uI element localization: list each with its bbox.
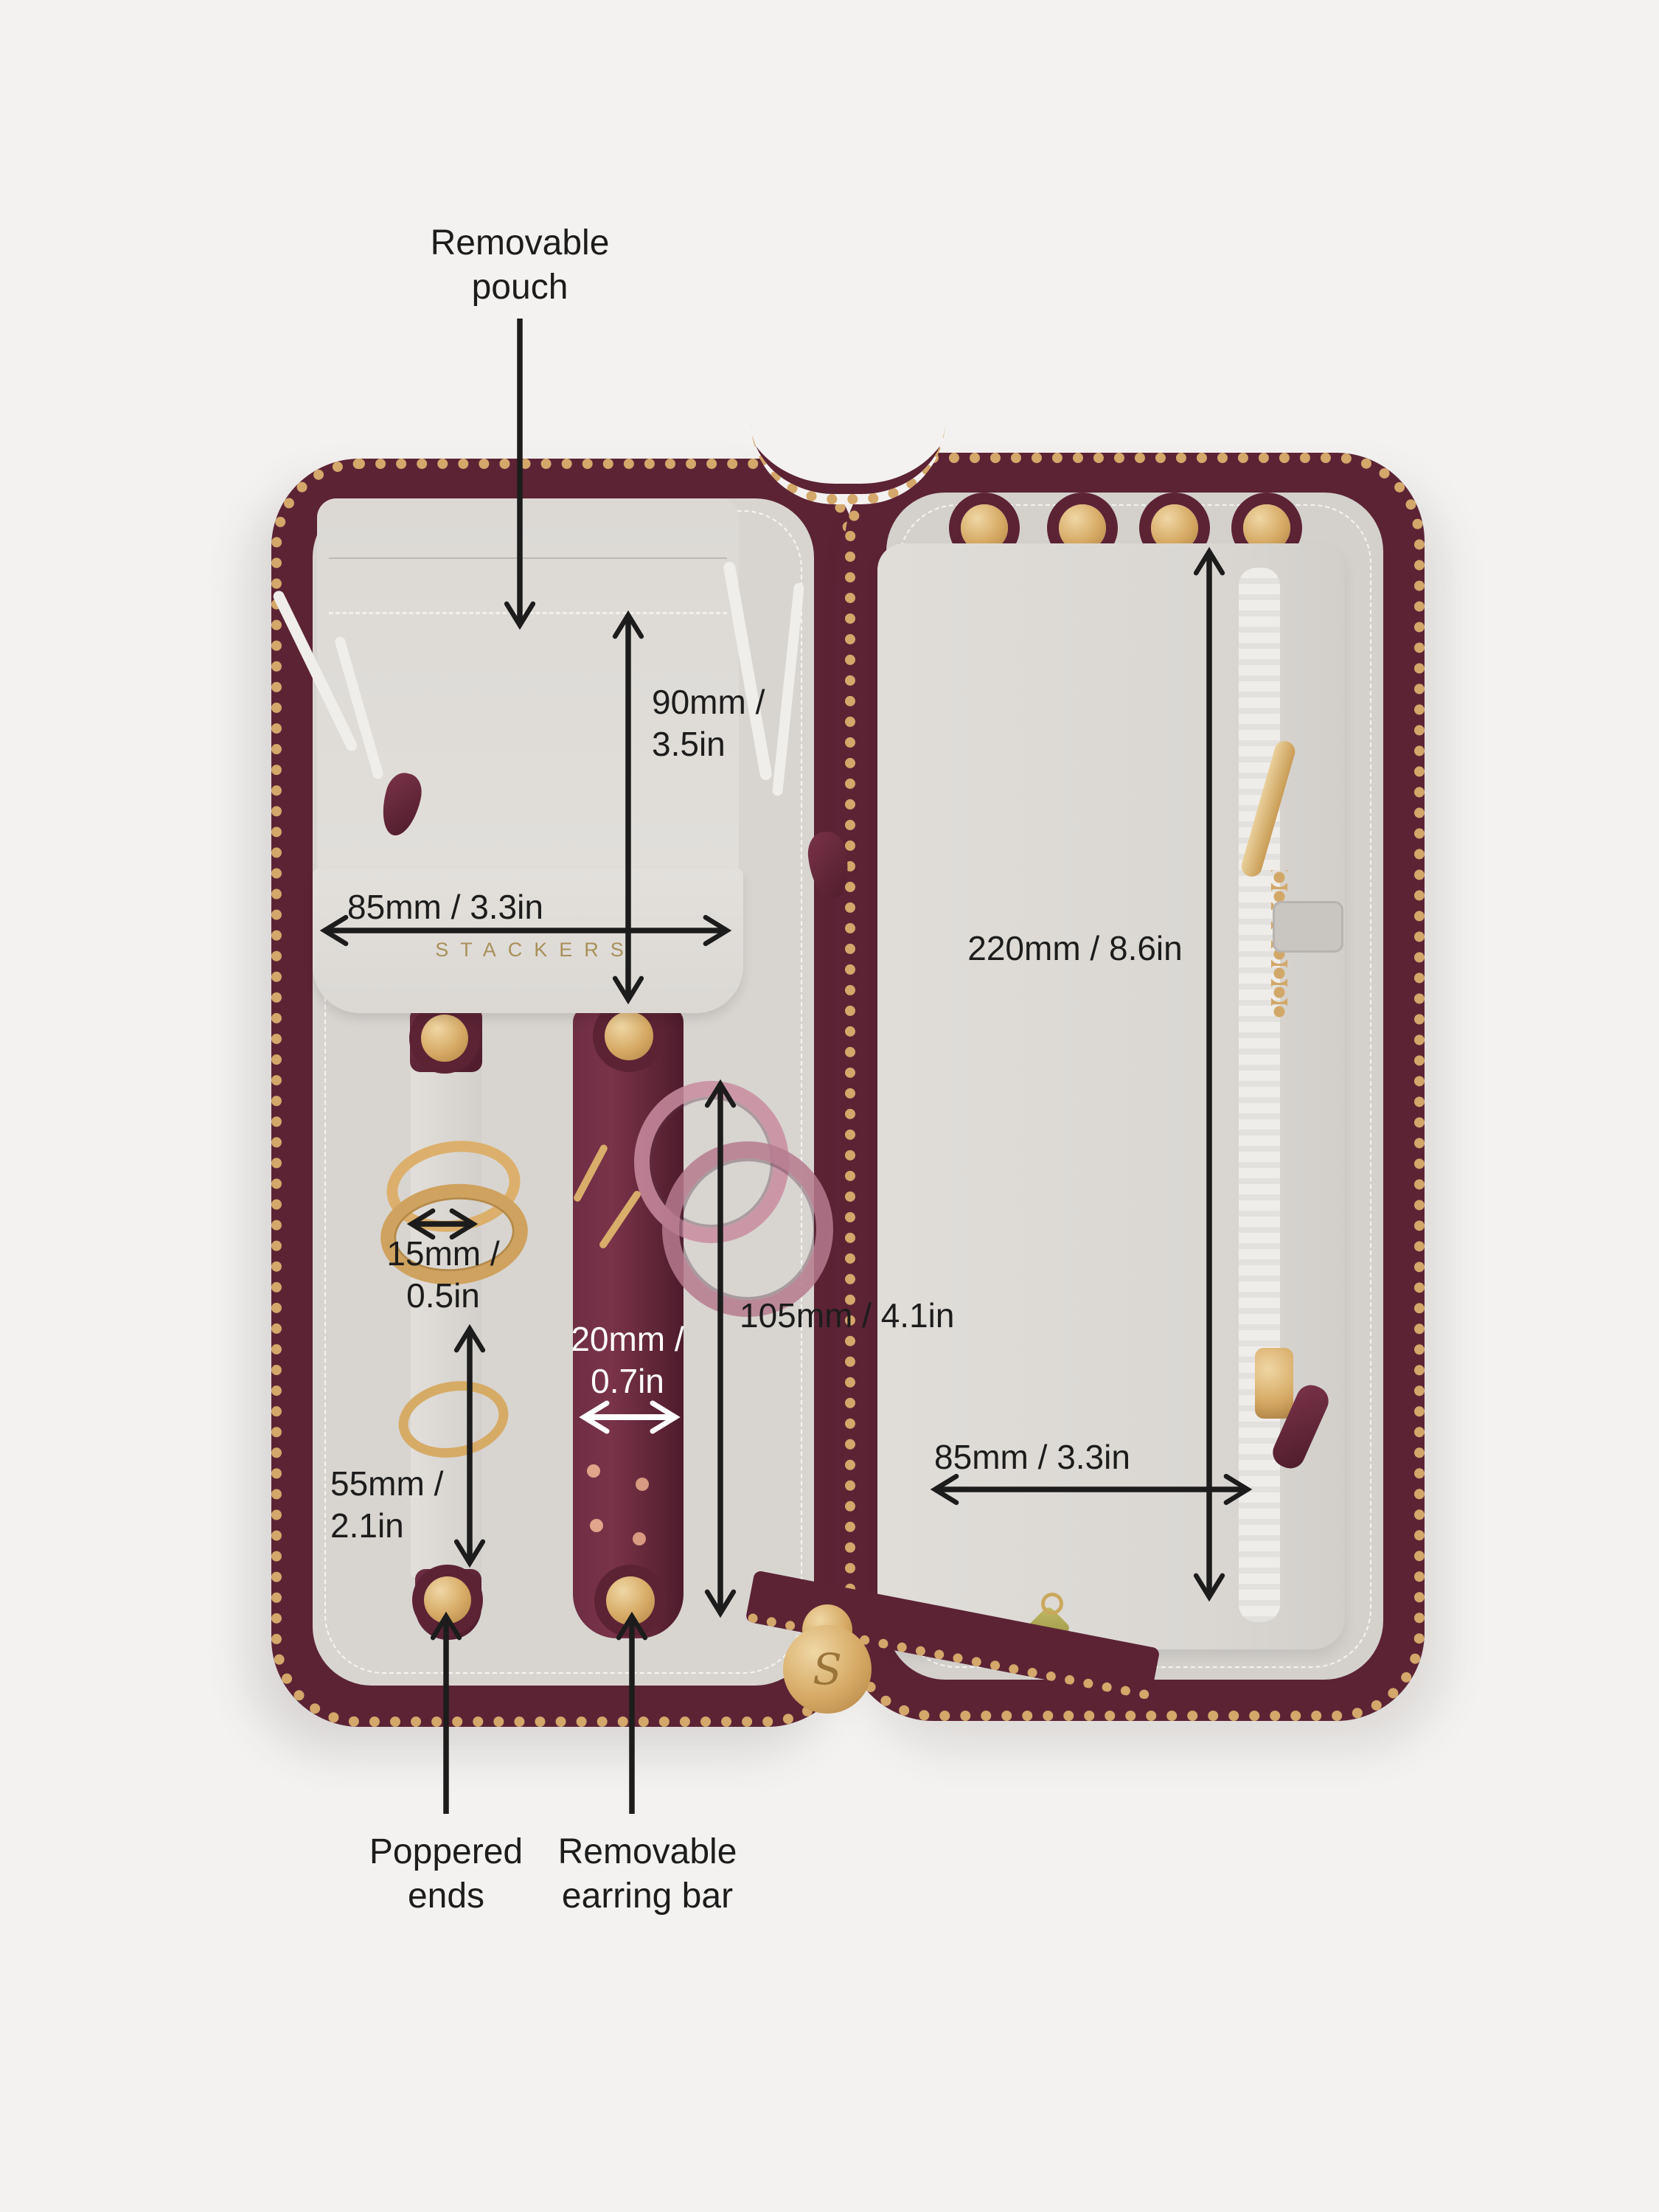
pocket-zip-slider (1255, 1348, 1293, 1419)
pouch-label: Removable pouch (431, 221, 610, 309)
earring-bar-bottom-popper (606, 1576, 655, 1625)
stud-earring-3 (590, 1519, 603, 1532)
poppered-ends-label: Poppered ends (369, 1830, 523, 1918)
stud-earring-4 (633, 1532, 646, 1545)
panel-height-label: 220mm / 8.6in (967, 928, 1182, 970)
ring-strap-length-label: 55mm / 2.1in (330, 1463, 443, 1547)
ring-strap-top-popper (421, 1015, 468, 1062)
ring-strap-bottom-popper (424, 1576, 471, 1624)
logo-initial: S (813, 1644, 842, 1694)
brand-embossed-text: STACKERS (435, 938, 636, 962)
pouch-width-label: 85mm / 3.3in (347, 886, 543, 928)
removable-earring-bar-label: Removable earring bar (558, 1830, 737, 1918)
pocket-width-label: 85mm / 3.3in (934, 1436, 1130, 1478)
hoop-earring-2 (662, 1141, 833, 1317)
elastic-loop (1273, 901, 1343, 953)
pouch-fold-line (329, 557, 727, 559)
earring-bar-top-popper (605, 1012, 653, 1060)
stud-earring-2 (636, 1478, 649, 1491)
earring-bar-width-label: 20mm / 0.7in (571, 1318, 684, 1402)
earring-bar-height-label: 105mm / 4.1in (740, 1295, 954, 1337)
pouch-drawstring-seam (329, 612, 727, 614)
ring-strap-width-label: 15mm / 0.5in (386, 1233, 499, 1317)
product-dimension-diagram: STACKERS (0, 0, 1659, 2212)
charm-ring (1041, 1593, 1063, 1615)
pouch-height-label: 90mm / 3.5in (652, 681, 765, 765)
stud-earring-1 (587, 1464, 600, 1478)
pocket-zip-tape (1239, 568, 1280, 1622)
stackers-logo-pull: S (783, 1625, 872, 1714)
